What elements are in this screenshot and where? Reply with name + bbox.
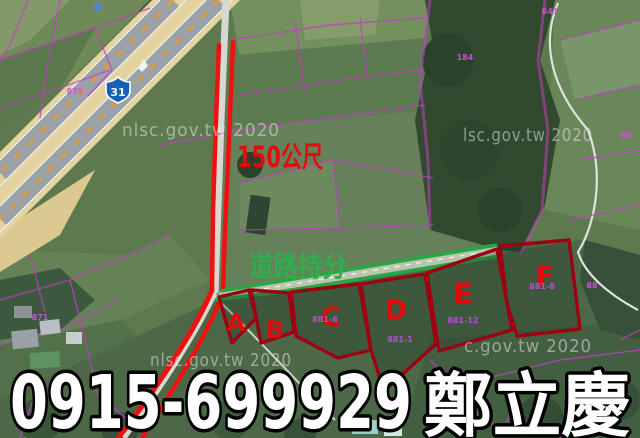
parcel-label-a: A xyxy=(227,309,246,337)
field-label: 871 xyxy=(32,313,49,322)
watermark-top-left: nlsc.gov.tw 2020 xyxy=(122,120,280,141)
contact-overlay: 0915-699929 鄭立慶 xyxy=(10,360,630,438)
watermark-top-right: lsc.gov.tw 2020 xyxy=(463,125,593,146)
contact-name: 鄭立慶 xyxy=(424,365,630,438)
route-number: 31 xyxy=(110,86,125,99)
field-label: 88 xyxy=(586,281,598,290)
map-pin-dot xyxy=(94,3,102,11)
field-label: 875 xyxy=(67,87,84,96)
field-label: 841 xyxy=(542,7,559,16)
distance-annotation: 150公尺 xyxy=(237,140,323,174)
contact-phone: 0915-699929 xyxy=(10,360,412,438)
parcel-label-b: B xyxy=(266,316,284,344)
map-canvas[interactable]: A B C D E F 881-6 881-1 881-12 881-8 875… xyxy=(0,0,640,438)
road-share-annotation: 道路持分 xyxy=(249,250,347,283)
satellite-map: A B C D E F 881-6 881-1 881-12 881-8 875… xyxy=(0,0,640,438)
parcel-number-e: 881-12 xyxy=(447,316,478,325)
parcel-label-e: E xyxy=(453,277,473,311)
field-label: 184 xyxy=(457,53,474,62)
route-shield-31: 31 xyxy=(106,77,130,103)
watermark-bottom-right: c.gov.tw 2020 xyxy=(464,336,592,357)
parcel-number-c: 881-6 xyxy=(312,315,338,324)
parcel-number-f: 881-8 xyxy=(529,282,555,291)
parcel-number-d: 881-1 xyxy=(387,335,413,344)
field-label: 86 xyxy=(620,131,632,140)
parcel-label-d: D xyxy=(385,295,407,326)
